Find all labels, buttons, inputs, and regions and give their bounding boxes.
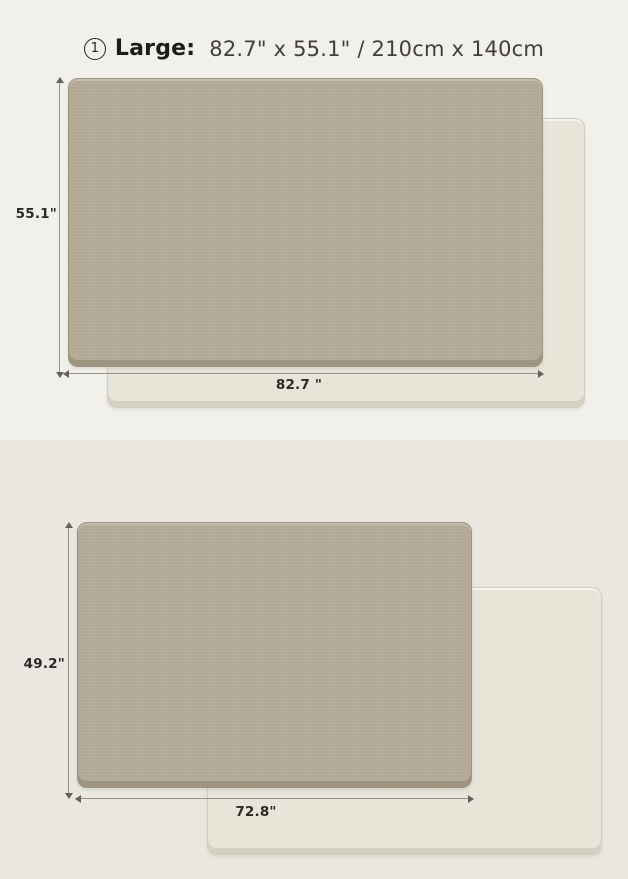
width-dimension-label: 72.8" [235,804,276,820]
size-section-large: 1 Large: 82.7" x 55.1" / 210cm x 140cm 5… [0,0,628,440]
mat-front-side [77,522,472,788]
arrow-left-icon [63,370,69,378]
height-dimension-line [68,523,69,798]
size-name-label: Large: [115,36,195,61]
arrow-up-icon [65,522,73,528]
section-title-large: 1 Large: 82.7" x 55.1" / 210cm x 140cm [0,36,628,61]
product-size-infographic: 1 Large: 82.7" x 55.1" / 210cm x 140cm 5… [0,0,628,879]
arrow-left-icon [75,795,81,803]
arrow-down-icon [65,793,73,799]
width-dimension-line [64,373,543,374]
width-dimension-label: 82.7 " [276,377,322,393]
size-spec-label: 82.7" x 55.1" / 210cm x 140cm [209,37,544,61]
size-section-medium: 2 Medium: 72.8" x 49.2" / 185cm x 125cm … [0,440,628,879]
arrow-up-icon [56,77,64,83]
width-dimension-line [76,798,473,799]
arrow-right-icon [538,370,544,378]
height-dimension-line [59,78,60,377]
height-dimension-label: 55.1" [16,206,57,222]
arrow-right-icon [468,795,474,803]
height-dimension-label: 49.2" [24,656,65,672]
circled-number-1-icon: 1 [84,38,106,60]
mat-front-side [68,78,543,367]
